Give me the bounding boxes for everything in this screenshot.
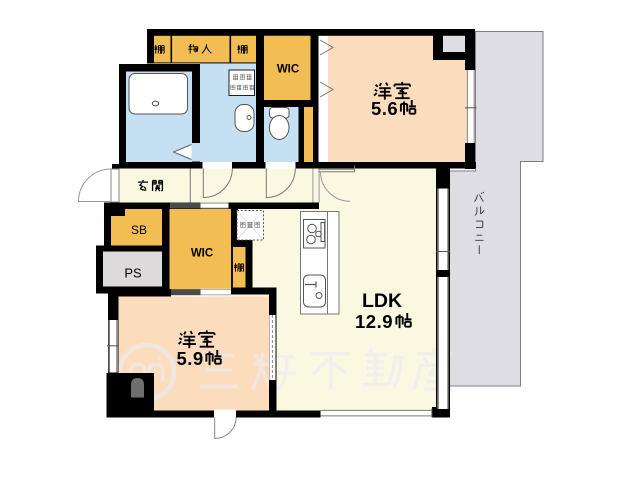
svg-text:PS: PS bbox=[124, 266, 142, 281]
svg-text:WIC: WIC bbox=[191, 248, 213, 260]
svg-text:5.9: 5.9 bbox=[177, 348, 204, 369]
svg-text:5.6: 5.6 bbox=[371, 98, 398, 119]
svg-text:12.9: 12.9 bbox=[355, 311, 393, 332]
svg-text:LDK: LDK bbox=[362, 290, 402, 312]
svg-text:SB: SB bbox=[131, 223, 147, 237]
svg-text:WIC: WIC bbox=[277, 64, 299, 76]
